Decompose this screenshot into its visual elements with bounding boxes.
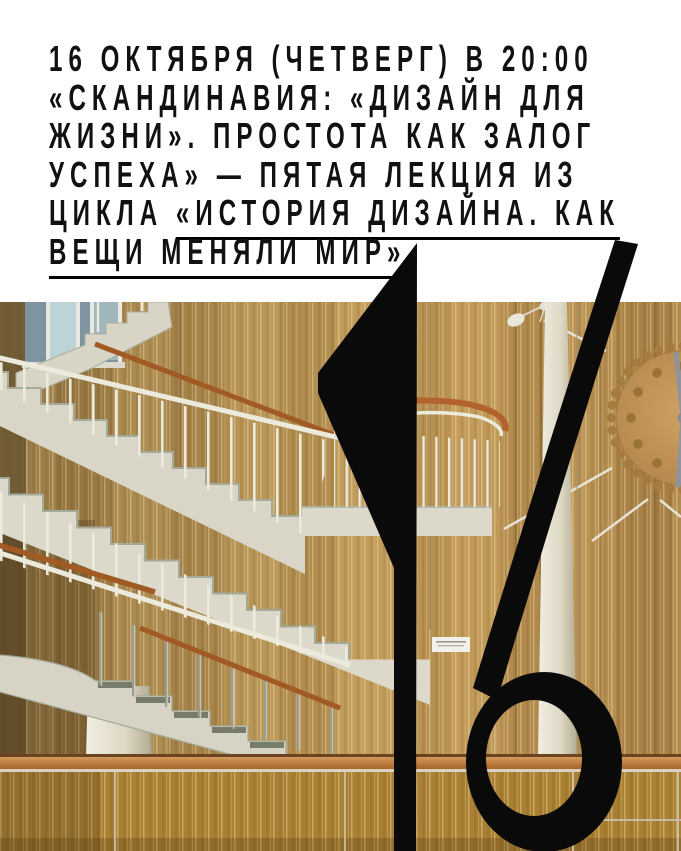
headline-line-2: «СКАНДИНАВИЯ: «ДИЗАЙН ДЛЯ <box>49 79 681 118</box>
stairwell-photo <box>0 302 681 851</box>
date-numeral-text: 16 <box>0 0 1 1</box>
headline-line-5: ЦИКЛА «ИСТОРИЯ ДИЗАЙНА. КАК <box>49 194 681 233</box>
headline-line-3: ЖИЗНИ». ПРОСТОТА КАК ЗАЛОГ <box>49 117 681 156</box>
landing-slab <box>302 506 492 536</box>
headline-line-1: 16 ОКТЯБРЯ (ЧЕТВЕРГ) В 20:00 <box>49 40 681 79</box>
parapet-shadow-line <box>0 754 681 758</box>
wall-sign <box>432 637 470 652</box>
headline-line-5-plain: ЦИКЛА <box>49 192 176 233</box>
balcony-balusters <box>334 430 500 507</box>
parapet-wood-cap <box>0 757 681 769</box>
headline-line-6-underlined: ВЕЩИ МЕНЯЛИ МИР» <box>49 231 406 279</box>
parapet <box>0 754 681 851</box>
stairwell-illustration <box>0 302 681 851</box>
event-poster: 16 ОКТЯБРЯ (ЧЕТВЕРГ) В 20:00 «СКАНДИНАВИ… <box>0 0 681 851</box>
event-headline: 16 ОКТЯБРЯ (ЧЕТВЕРГ) В 20:00 «СКАНДИНАВИ… <box>49 40 681 271</box>
headline-line-4: УСПЕХА» — ПЯТАЯ ЛЕКЦИЯ ИЗ <box>49 156 681 195</box>
